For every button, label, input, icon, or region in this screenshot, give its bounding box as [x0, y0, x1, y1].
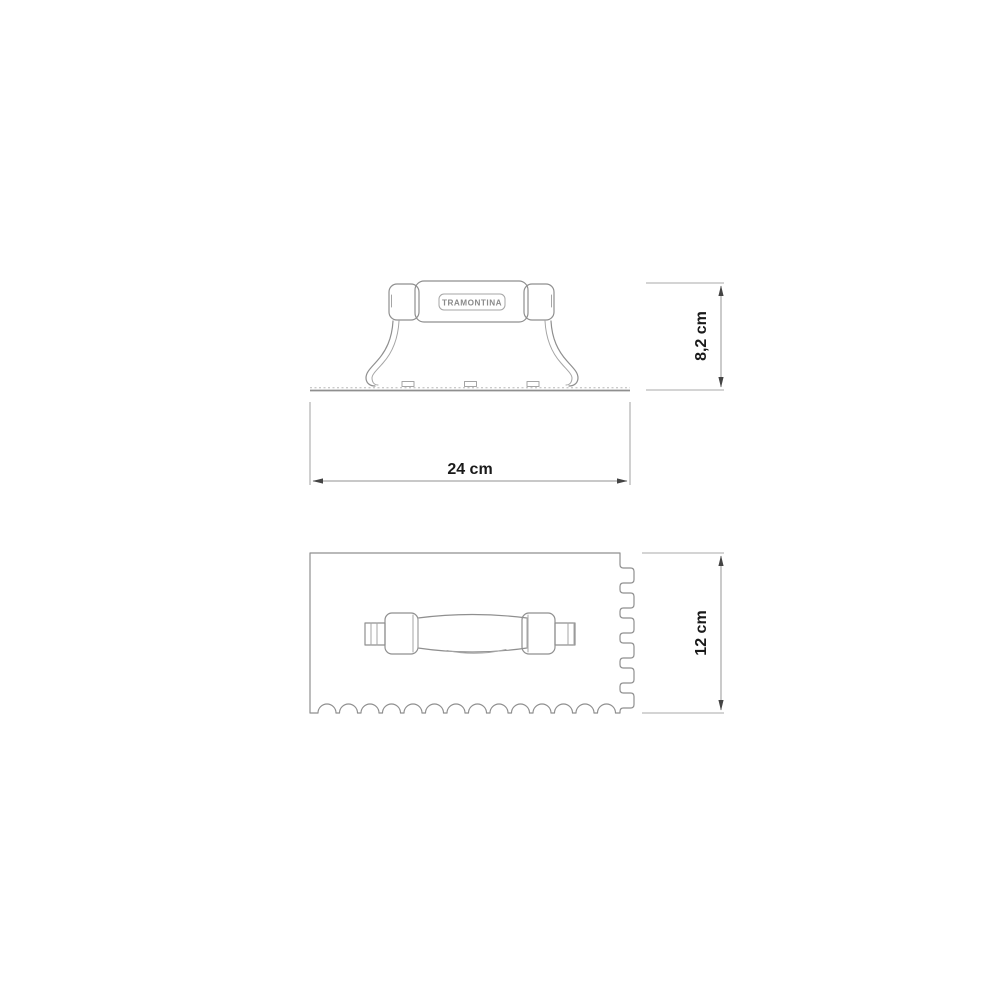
- bracket-left-inner: [372, 321, 399, 385]
- handle-side: TRAMONTINA: [389, 281, 554, 322]
- bracket-side: [366, 321, 578, 386]
- plan-view: [310, 553, 634, 713]
- trowel-dimension-diagram: TRAMONTINA 8,2 cm: [0, 0, 1000, 1000]
- dimension-depth: 12 cm: [642, 553, 724, 713]
- bracket-left-outer: [366, 321, 393, 386]
- bracket-right-inner: [545, 321, 572, 385]
- handle-plan: [365, 613, 575, 654]
- plate-plan-outline: [310, 553, 634, 713]
- plate-tab-center: [465, 382, 477, 387]
- grip-plan-bottom-edge: [418, 648, 527, 652]
- side-view: TRAMONTINA: [310, 281, 630, 391]
- dimension-height: 8,2 cm: [646, 283, 724, 390]
- dimension-width: 24 cm: [310, 402, 630, 485]
- handle-plan-right-stub: [555, 623, 575, 645]
- handle-plan-left-stub: [365, 623, 385, 645]
- plate-side: [310, 382, 630, 391]
- width-dimension-label: 24 cm: [447, 461, 492, 478]
- plate-tab-left: [402, 382, 414, 387]
- brand-label: TRAMONTINA: [442, 299, 502, 308]
- plate-tab-right: [527, 382, 539, 387]
- depth-dimension-label: 12 cm: [693, 610, 710, 655]
- height-dimension-label: 8,2 cm: [693, 311, 710, 361]
- bracket-right-outer: [551, 321, 578, 386]
- diagram-canvas: TRAMONTINA 8,2 cm: [0, 0, 1000, 1000]
- grip-plan-top-edge: [418, 615, 527, 619]
